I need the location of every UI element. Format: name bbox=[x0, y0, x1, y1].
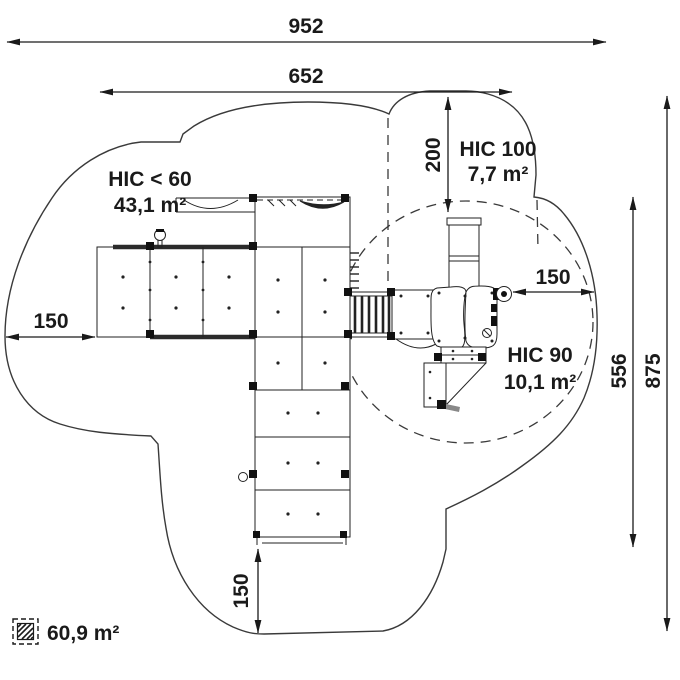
hic60-zone-label: HIC < 60 43,1 m² bbox=[108, 168, 191, 217]
hic90-zone-label: HIC 90 10,1 m² bbox=[504, 344, 576, 394]
plan-drawing: 952 652 200 150 150 150 556 875 HIC < 60… bbox=[0, 0, 680, 680]
dimension-200: 200 bbox=[422, 97, 448, 212]
dimension-150-bottom: 150 bbox=[230, 549, 258, 633]
hic100-area: 7,7 m² bbox=[468, 163, 529, 186]
slide-roller bbox=[493, 287, 512, 302]
right-walkway bbox=[392, 290, 436, 348]
dimension-150-bottom-label: 150 bbox=[230, 573, 253, 608]
access-stairs bbox=[424, 347, 486, 412]
periscope-toy bbox=[155, 229, 166, 247]
dimension-150-right-label: 150 bbox=[535, 266, 570, 289]
hic100-title: HIC 100 bbox=[459, 138, 536, 161]
dimension-150-left: 150 bbox=[6, 310, 95, 337]
legend-total-area: 60,9 m² bbox=[47, 622, 119, 645]
hic60-title: HIC < 60 bbox=[108, 168, 191, 191]
hic90-area: 10,1 m² bbox=[504, 371, 576, 394]
dimension-652: 652 bbox=[100, 65, 512, 92]
dimension-150-right: 150 bbox=[513, 266, 594, 292]
dimension-556: 556 bbox=[608, 197, 633, 547]
dimension-875: 875 bbox=[642, 96, 667, 631]
balcony-rail bbox=[176, 198, 255, 212]
legend: 60,9 m² bbox=[13, 619, 119, 645]
legend-hatched-square bbox=[18, 624, 34, 640]
slide-chute bbox=[447, 218, 481, 292]
hic100-zone-label: HIC 100 7,7 m² bbox=[459, 138, 536, 186]
dimension-875-label: 875 bbox=[642, 353, 665, 388]
dimension-952: 952 bbox=[7, 15, 606, 42]
playground-safety-plan: 952 652 200 150 150 150 556 875 HIC < 60… bbox=[0, 0, 680, 680]
hic60-area: 43,1 m² bbox=[114, 194, 186, 217]
dimension-150-left-label: 150 bbox=[33, 310, 68, 333]
dimension-556-label: 556 bbox=[608, 353, 631, 388]
main-deck bbox=[431, 286, 497, 348]
hic90-title: HIC 90 bbox=[507, 344, 572, 367]
dimension-952-label: 952 bbox=[288, 15, 323, 38]
dimension-652-label: 652 bbox=[288, 65, 323, 88]
dimension-200-label: 200 bbox=[422, 137, 445, 172]
playground-structure bbox=[97, 194, 512, 545]
net-bridge bbox=[350, 292, 392, 337]
